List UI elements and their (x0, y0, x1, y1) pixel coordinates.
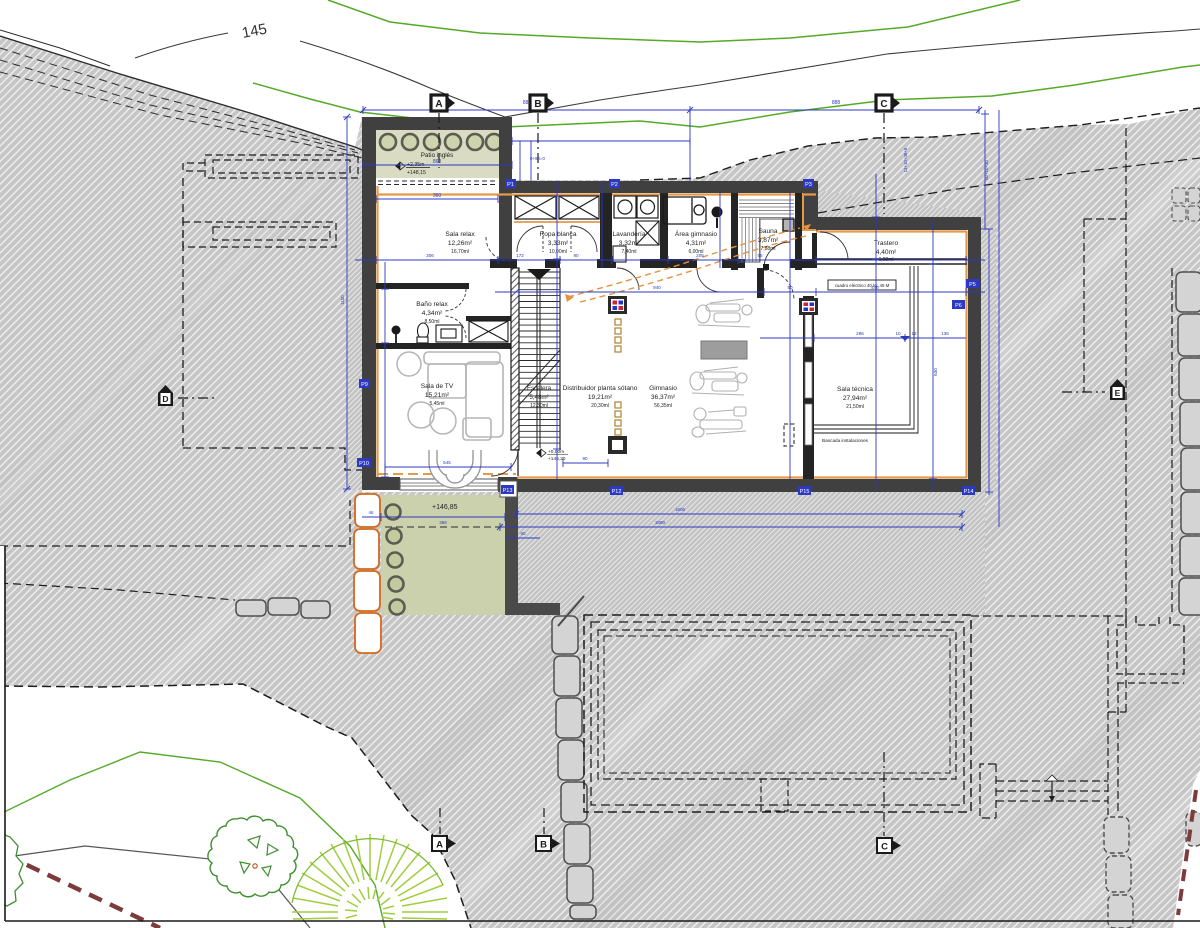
svg-text:286: 286 (856, 331, 864, 336)
svg-text:4,31m²: 4,31m² (686, 240, 707, 247)
svg-text:13+10+38+8: 13+10+38+8 (903, 147, 908, 172)
svg-text:P3: P3 (805, 182, 812, 188)
svg-text:1100: 1100 (340, 295, 345, 305)
svg-text:C: C (881, 842, 888, 853)
svg-text:56,35ml: 56,35ml (654, 403, 672, 409)
svg-text:3,33m²: 3,33m² (548, 240, 569, 247)
svg-text:Trastero: Trastero (874, 240, 899, 247)
svg-text:3,32m²: 3,32m² (619, 240, 640, 247)
svg-text:15,21m²: 15,21m² (425, 392, 450, 399)
svg-text:360: 360 (433, 193, 442, 199)
svg-text:Área gimnasio: Área gimnasio (675, 229, 717, 238)
svg-text:+146,85: +146,85 (432, 504, 458, 511)
svg-text:P6: P6 (955, 303, 962, 309)
svg-text:306: 306 (426, 253, 434, 258)
svg-text:Ropa blanca: Ropa blanca (539, 231, 576, 238)
svg-text:5,45ml: 5,45ml (429, 401, 444, 407)
svg-text:860: 860 (433, 159, 442, 165)
svg-text:20,30ml: 20,30ml (591, 403, 609, 409)
svg-text:B: B (540, 840, 547, 851)
svg-text:D: D (162, 394, 168, 404)
svg-text:4,40m²: 4,40m² (876, 249, 897, 256)
svg-text:Patio inglés: Patio inglés (421, 152, 454, 159)
svg-text:P9: P9 (361, 382, 368, 388)
svg-text:16,70ml: 16,70ml (451, 249, 469, 255)
svg-text:10: 10 (895, 331, 901, 336)
svg-text:90: 90 (582, 456, 588, 461)
svg-text:P15: P15 (800, 489, 810, 495)
svg-text:+148,15: +148,15 (407, 170, 426, 176)
svg-text:C: C (880, 99, 887, 110)
svg-text:136: 136 (941, 331, 949, 336)
svg-text:55: 55 (757, 253, 763, 258)
svg-text:440: 440 (871, 285, 879, 290)
svg-text:545: 545 (443, 460, 451, 465)
svg-text:36,37m²: 36,37m² (651, 394, 676, 401)
svg-text:P13: P13 (503, 488, 513, 494)
svg-text:46: 46 (369, 510, 374, 515)
svg-text:Sala relax: Sala relax (445, 231, 475, 238)
svg-text:Sauna: Sauna (758, 228, 777, 235)
svg-text:P10: P10 (359, 461, 369, 467)
svg-text:1806: 1806 (675, 507, 686, 512)
svg-text:21,50ml: 21,50ml (846, 404, 864, 410)
svg-text:12: 12 (911, 331, 917, 336)
svg-text:+0,00m: +0,00m (548, 449, 564, 455)
svg-text:P2: P2 (611, 182, 618, 188)
svg-text:940: 940 (653, 285, 661, 290)
svg-text:10,00ml: 10,00ml (549, 249, 567, 255)
svg-text:172: 172 (516, 253, 524, 258)
svg-text:888: 888 (832, 100, 841, 106)
svg-text:Baño relax: Baño relax (416, 301, 448, 308)
svg-text:12,26m²: 12,26m² (448, 240, 473, 247)
svg-text:8,50ml: 8,50ml (424, 319, 439, 325)
svg-text:A: A (436, 840, 443, 851)
svg-text:205: 205 (696, 253, 704, 258)
svg-text:368: 368 (439, 520, 447, 525)
svg-text:7,40ml: 7,40ml (621, 249, 636, 255)
svg-text:Bancada instalaciones: Bancada instalaciones (822, 438, 869, 443)
svg-text:Gimnasio: Gimnasio (649, 385, 677, 392)
svg-text:3,87m²: 3,87m² (758, 237, 779, 244)
svg-text:4,34m²: 4,34m² (422, 310, 443, 317)
svg-text:cuadro eléctrico 40 kv, 45 M: cuadro eléctrico 40 kv, 45 M (835, 283, 890, 288)
svg-text:19,21m²: 19,21m² (588, 394, 613, 401)
svg-text:27,94m²: 27,94m² (843, 395, 868, 402)
svg-text:P12: P12 (612, 489, 622, 495)
svg-text:Lavandería: Lavandería (613, 231, 646, 238)
svg-text:Distribuidor planta sótano: Distribuidor planta sótano (563, 385, 638, 392)
svg-text:7,88ml: 7,88ml (760, 246, 775, 252)
svg-text:60+10+30: 60+10+30 (984, 160, 989, 180)
svg-text:A: A (435, 99, 442, 110)
svg-text:E: E (1115, 388, 1121, 398)
svg-text:Sala técnica: Sala técnica (837, 386, 873, 393)
svg-text:P1: P1 (507, 182, 514, 188)
svg-text:90: 90 (573, 253, 579, 258)
svg-text:P14: P14 (964, 489, 974, 495)
svg-text:630: 630 (933, 368, 938, 376)
svg-text:5,48m²: 5,48m² (529, 394, 548, 401)
svg-text:90: 90 (521, 531, 526, 536)
svg-text:12,30ml: 12,30ml (530, 403, 548, 409)
svg-text:Sala de TV: Sala de TV (421, 383, 454, 390)
svg-text:P5: P5 (969, 282, 976, 288)
svg-text:Escalera: Escalera (527, 385, 552, 392)
svg-text:1890: 1890 (655, 520, 666, 525)
svg-text:B: B (534, 99, 541, 110)
